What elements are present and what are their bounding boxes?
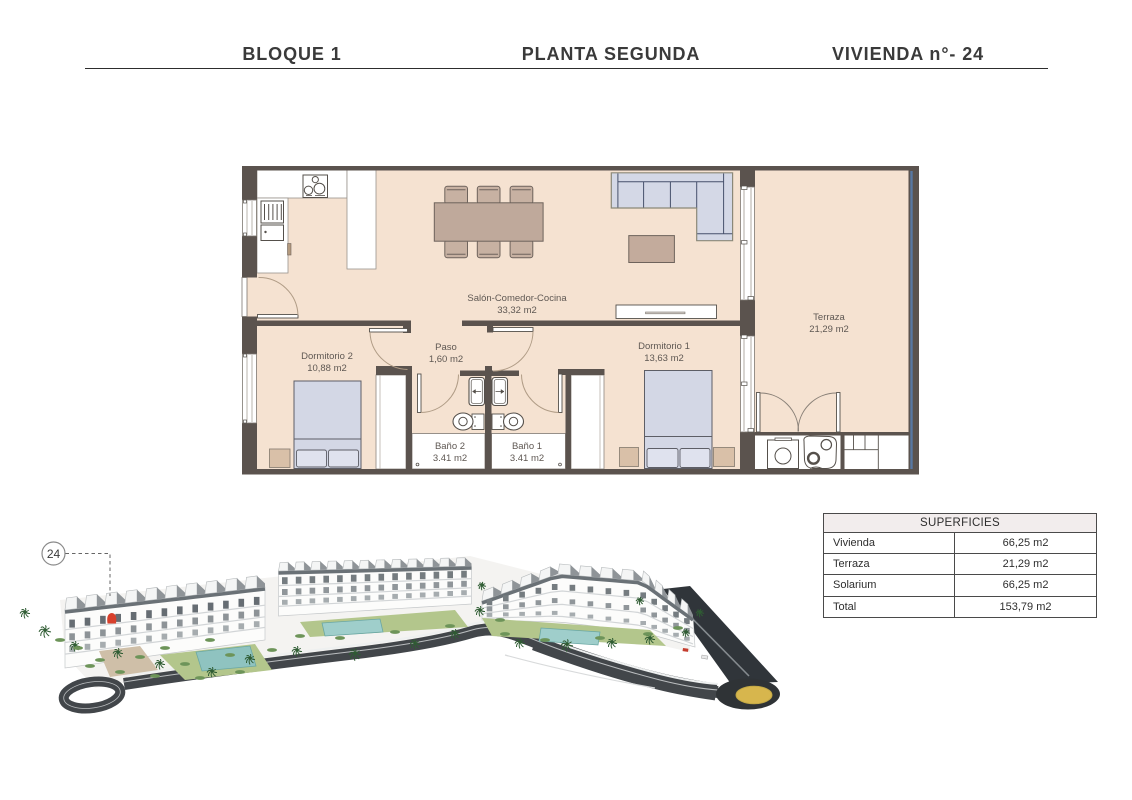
svg-text:1,60 m2: 1,60 m2 xyxy=(429,354,463,365)
svg-text:Dormitorio 2: Dormitorio 2 xyxy=(301,351,353,362)
svg-text:Baño 1: Baño 1 xyxy=(512,441,542,452)
svg-text:Salón-Comedor-Cocina: Salón-Comedor-Cocina xyxy=(467,293,567,304)
svg-text:Dormitorio 1: Dormitorio 1 xyxy=(638,341,690,352)
svg-text:33,32 m2: 33,32 m2 xyxy=(497,305,537,316)
svg-text:21,29 m2: 21,29 m2 xyxy=(809,324,849,335)
svg-text:Paso: Paso xyxy=(435,342,457,353)
svg-text:Baño 2: Baño 2 xyxy=(435,441,465,452)
svg-text:Terraza: Terraza xyxy=(813,312,845,323)
svg-text:13,63 m2: 13,63 m2 xyxy=(644,353,684,364)
svg-text:3.41 m2: 3.41 m2 xyxy=(510,453,544,464)
svg-text:3.41 m2: 3.41 m2 xyxy=(433,453,467,464)
svg-text:24: 24 xyxy=(47,547,61,561)
svg-text:10,88 m2: 10,88 m2 xyxy=(307,363,347,374)
